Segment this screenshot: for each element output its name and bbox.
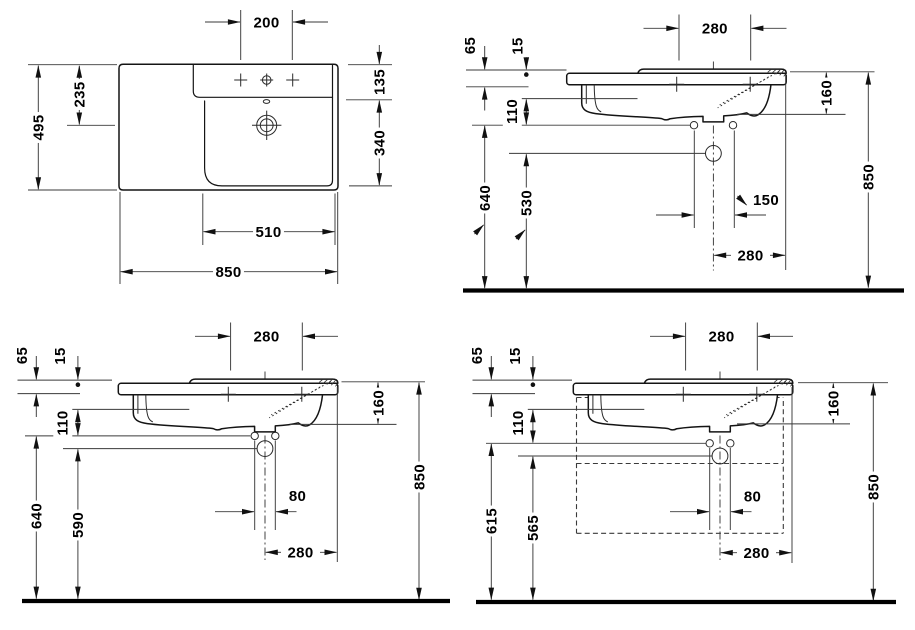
fixing-hole-right <box>729 122 736 129</box>
dim-text: 850 <box>411 464 428 490</box>
dim-tap-centres: 280 <box>644 15 787 61</box>
dim-text: 850 <box>866 474 883 500</box>
dim-tap-hole-spacing: 200 <box>205 10 328 60</box>
dim-rim-step: 15 <box>51 345 80 387</box>
dim-text: 200 <box>254 14 280 31</box>
dim-text: 15 <box>507 347 524 364</box>
dim-fixing-centres: 80 <box>670 448 764 530</box>
dim-text: 160 <box>370 390 387 416</box>
dim-rim-step: 15 <box>508 35 528 77</box>
reference-dot <box>76 382 81 387</box>
dim-text: 80 <box>289 488 306 505</box>
reference-dot <box>531 382 536 387</box>
basin-outline-plan <box>119 64 338 190</box>
technical-drawing-sheet: 200 495 235 135 340 510 <box>0 0 915 630</box>
dim-text: 160 <box>826 391 843 417</box>
dim-text: 850 <box>861 164 878 190</box>
dim-text: 65 <box>462 37 479 54</box>
dim-text: 80 <box>744 488 761 505</box>
dim-text: 280 <box>744 545 770 562</box>
dim-fixing-height: 615 <box>483 444 502 600</box>
dim-text: 280 <box>738 248 764 265</box>
fixing-hole-left <box>251 432 258 439</box>
front-view-siphon: 280 65 15 110 640 530 <box>461 15 904 291</box>
dim-text: 135 <box>372 69 389 95</box>
dim-rim-step: 15 <box>506 345 535 387</box>
front-view-furniture: 280 65 15 110 615 565 160 <box>468 323 896 603</box>
dim-text: 615 <box>484 508 501 534</box>
dim-fixing-centres: 80 <box>215 441 309 531</box>
dim-drain-height: 565 <box>524 457 543 600</box>
dim-rim-height: 850 <box>865 384 884 601</box>
dim-text: 640 <box>29 503 46 529</box>
dim-text: 565 <box>525 515 542 541</box>
dim-bowl-width: 510 <box>203 194 335 246</box>
dim-text: 160 <box>819 80 836 106</box>
dim-rim-height: 850 <box>410 383 429 600</box>
fixing-hole-right <box>272 432 279 439</box>
dim-text: 235 <box>72 82 89 108</box>
dim-rim-height: 850 <box>860 73 879 288</box>
dim-text: 340 <box>372 130 389 156</box>
dim-fixing-centres: 150 <box>656 131 781 229</box>
dim-front-edge-to-drain: 235 <box>67 66 115 126</box>
dim-text: 65 <box>469 347 486 364</box>
dim-drain-height: 590 <box>69 449 88 598</box>
dim-tap-centres: 280 <box>650 323 793 371</box>
fixing-hole-right <box>727 440 734 447</box>
drawing-canvas: 200 495 235 135 340 510 <box>0 0 915 630</box>
dim-text: 280 <box>702 21 728 38</box>
dim-text: 110 <box>54 410 71 435</box>
dim-text: 850 <box>216 264 242 281</box>
reference-dot <box>524 72 529 77</box>
dim-text: 110 <box>510 410 527 435</box>
dim-tap-centres: 280 <box>195 323 338 371</box>
plan-view: 200 495 235 135 340 510 <box>28 10 392 284</box>
dim-fixing-height: 640 <box>28 437 47 599</box>
front-view-fixing: 280 65 15 110 640 590 160 <box>13 323 450 602</box>
dim-total-width: 850 <box>120 192 338 284</box>
dim-text: 15 <box>509 37 526 54</box>
dim-deck-depth: 135 <box>346 45 392 100</box>
dim-text: 65 <box>14 347 31 364</box>
dim-text: 495 <box>31 115 48 141</box>
dim-label: 200 <box>251 13 282 32</box>
dim-drain-height: 530 <box>516 154 537 288</box>
dim-text: 640 <box>477 185 494 211</box>
fixing-hole-left <box>690 122 697 129</box>
dim-bowl-depth: 340 <box>349 101 392 186</box>
dim-fixing-height: 640 <box>475 126 496 288</box>
dim-text: 280 <box>288 545 314 562</box>
dim-text: 280 <box>709 329 735 346</box>
dim-text: 150 <box>753 192 779 209</box>
dim-text: 510 <box>256 224 282 241</box>
fixing-hole-left <box>706 440 713 447</box>
dim-text: 110 <box>504 99 521 124</box>
dim-text: 280 <box>254 329 280 346</box>
dim-text: 530 <box>519 190 536 216</box>
dim-text: 15 <box>52 347 69 364</box>
dim-text: 590 <box>70 512 87 538</box>
